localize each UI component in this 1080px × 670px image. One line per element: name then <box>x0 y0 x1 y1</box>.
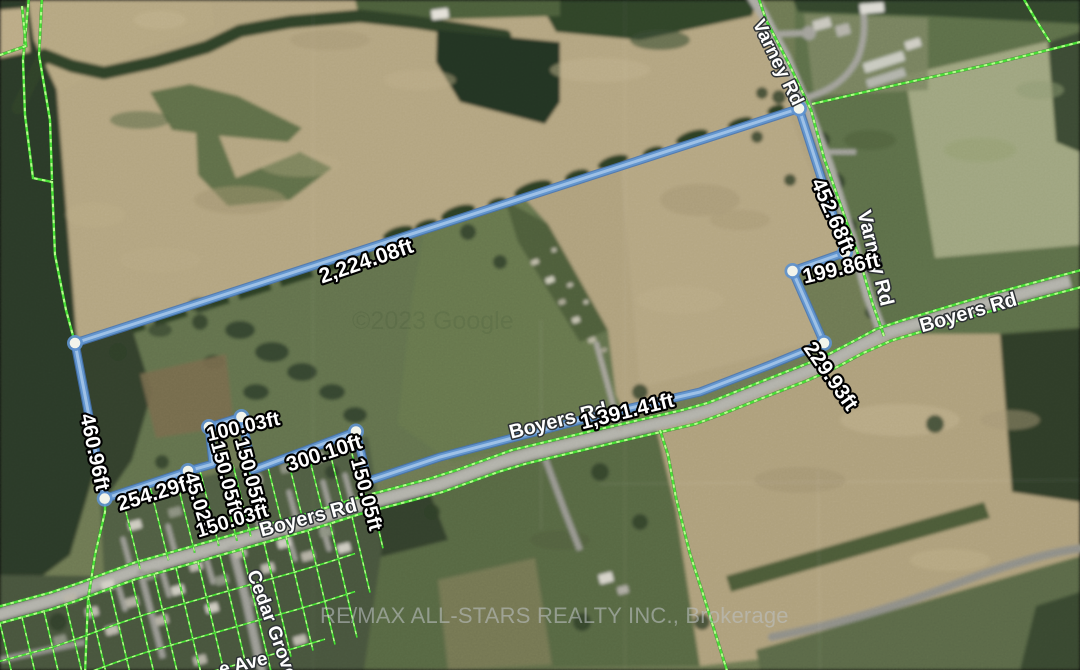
svg-text:©2023 Google: ©2023 Google <box>352 307 514 335</box>
svg-text:RE/MAX ALL-STARS REALTY INC.,: RE/MAX ALL-STARS REALTY INC., Brokerage <box>320 603 789 628</box>
